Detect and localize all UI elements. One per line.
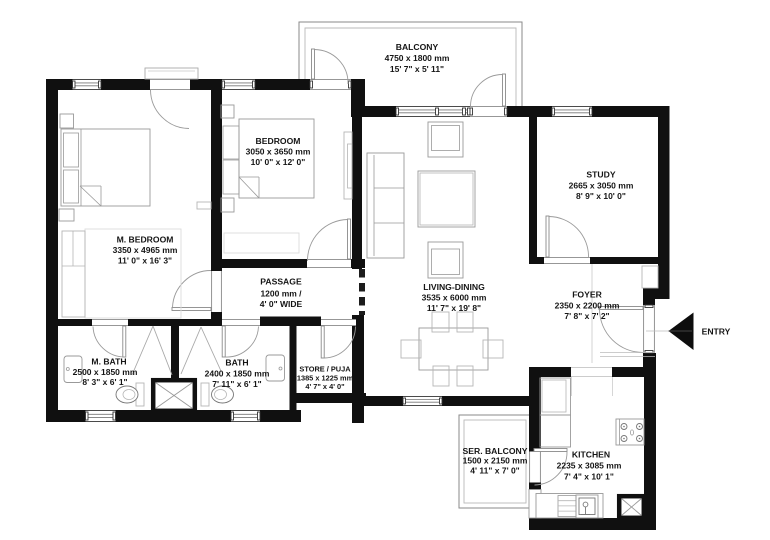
svg-text:7' 4" x 10' 1": 7' 4" x 10' 1" xyxy=(564,472,614,482)
svg-text:3350 x 4965 mm: 3350 x 4965 mm xyxy=(113,245,178,255)
svg-text:2665 x 3050 mm: 2665 x 3050 mm xyxy=(569,181,634,191)
svg-text:4' 11" x 7' 0": 4' 11" x 7' 0" xyxy=(470,466,519,476)
svg-text:SER. BALCONY: SER. BALCONY xyxy=(463,446,528,456)
svg-text:15' 7" x 5' 11": 15' 7" x 5' 11" xyxy=(390,64,444,74)
svg-text:4' 7" x 4' 0": 4' 7" x 4' 0" xyxy=(305,382,345,391)
svg-text:8' 3" x 6' 1": 8' 3" x 6' 1" xyxy=(82,377,127,387)
svg-text:2350 x 2200 mm: 2350 x 2200 mm xyxy=(555,301,620,311)
svg-text:1500 x 2150 mm: 1500 x 2150 mm xyxy=(463,456,528,466)
svg-text:KITCHEN: KITCHEN xyxy=(572,450,610,460)
svg-text:2400 x 1850 mm: 2400 x 1850 mm xyxy=(205,369,270,379)
svg-text:STORE / PUJA: STORE / PUJA xyxy=(299,365,351,374)
svg-text:FOYER: FOYER xyxy=(572,290,602,300)
svg-text:M. BATH: M. BATH xyxy=(91,357,126,367)
svg-text:4750 x 1800 mm: 4750 x 1800 mm xyxy=(385,53,450,63)
svg-text:8' 9" x 10' 0": 8' 9" x 10' 0" xyxy=(576,191,626,201)
svg-text:11' 0" x 16' 3": 11' 0" x 16' 3" xyxy=(118,256,172,266)
svg-text:BATH: BATH xyxy=(225,358,248,368)
svg-text:1200 mm /: 1200 mm / xyxy=(260,289,302,299)
svg-text:7' 8" x 7' 2": 7' 8" x 7' 2" xyxy=(564,311,609,321)
svg-text:BEDROOM: BEDROOM xyxy=(256,136,301,146)
svg-text:BALCONY: BALCONY xyxy=(396,42,439,52)
svg-text:PASSAGE: PASSAGE xyxy=(260,277,302,287)
svg-text:10' 0" x 12' 0": 10' 0" x 12' 0" xyxy=(251,157,306,167)
svg-text:3050 x 3650 mm: 3050 x 3650 mm xyxy=(246,147,311,157)
svg-text:LIVING-DINING: LIVING-DINING xyxy=(423,282,485,292)
svg-text:4' 0" WIDE: 4' 0" WIDE xyxy=(260,299,303,309)
svg-text:ENTRY: ENTRY xyxy=(702,327,731,337)
svg-text:3535 x 6000 mm: 3535 x 6000 mm xyxy=(422,293,487,303)
svg-text:M. BEDROOM: M. BEDROOM xyxy=(117,235,174,245)
svg-text:STUDY: STUDY xyxy=(586,170,615,180)
svg-text:2235 x 3085 mm: 2235 x 3085 mm xyxy=(557,461,622,471)
svg-text:7' 11" x 6' 1": 7' 11" x 6' 1" xyxy=(212,379,261,389)
svg-text:11' 7" x 19' 8": 11' 7" x 19' 8" xyxy=(427,303,481,313)
svg-text:2500 x 1850 mm: 2500 x 1850 mm xyxy=(73,367,138,377)
